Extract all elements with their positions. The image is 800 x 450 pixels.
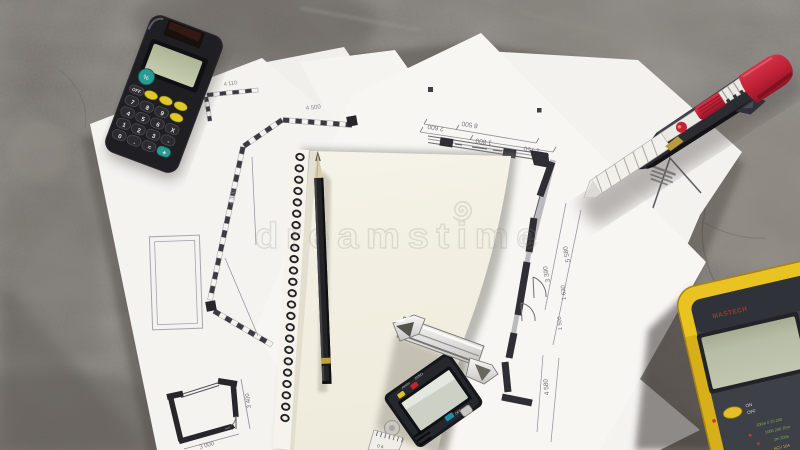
svg-text:1 500: 1 500 xyxy=(557,316,564,330)
svg-text:dreamstime: dreamstime xyxy=(255,215,545,256)
svg-text:4 580: 4 580 xyxy=(543,378,551,395)
